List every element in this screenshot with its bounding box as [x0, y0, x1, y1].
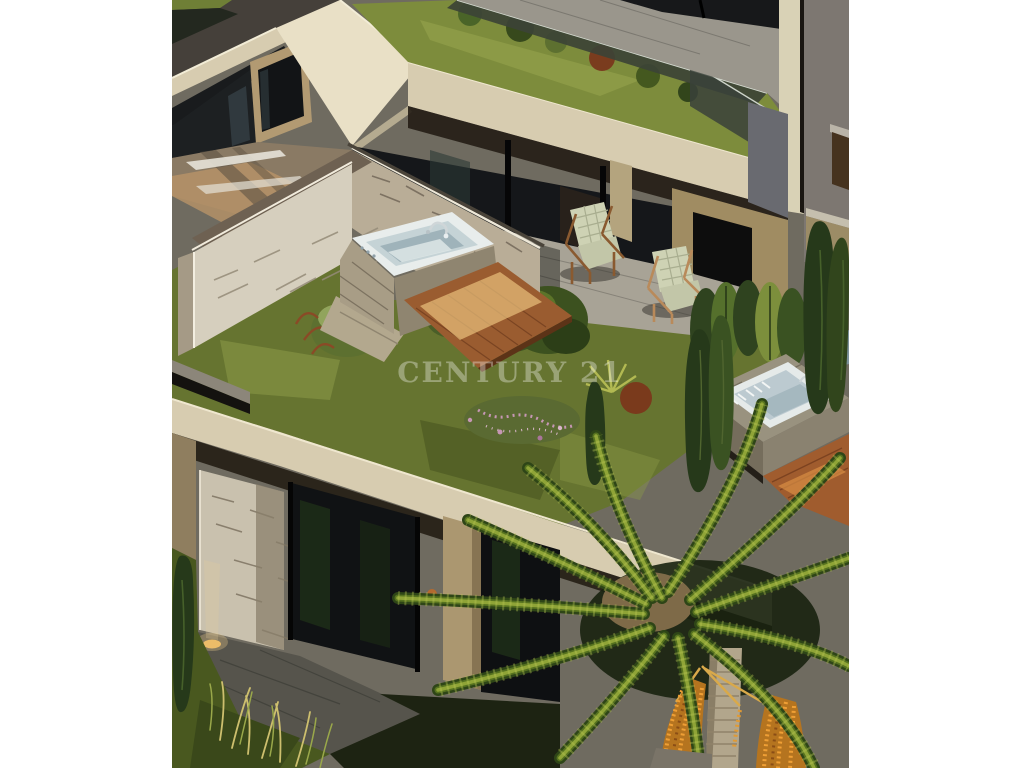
- column: [610, 160, 632, 242]
- white-margin-right: [849, 0, 1024, 768]
- wall-box: [832, 132, 849, 190]
- white-margin-left: [0, 0, 172, 768]
- red-bush-2: [620, 382, 652, 414]
- screenshot-canvas: CENTURY 21: [0, 0, 1024, 768]
- flower-bed: [464, 396, 580, 444]
- listing-photo: CENTURY 21: [172, 0, 849, 768]
- stone-pillar: [178, 252, 194, 356]
- century21-watermark: CENTURY 21: [397, 356, 623, 389]
